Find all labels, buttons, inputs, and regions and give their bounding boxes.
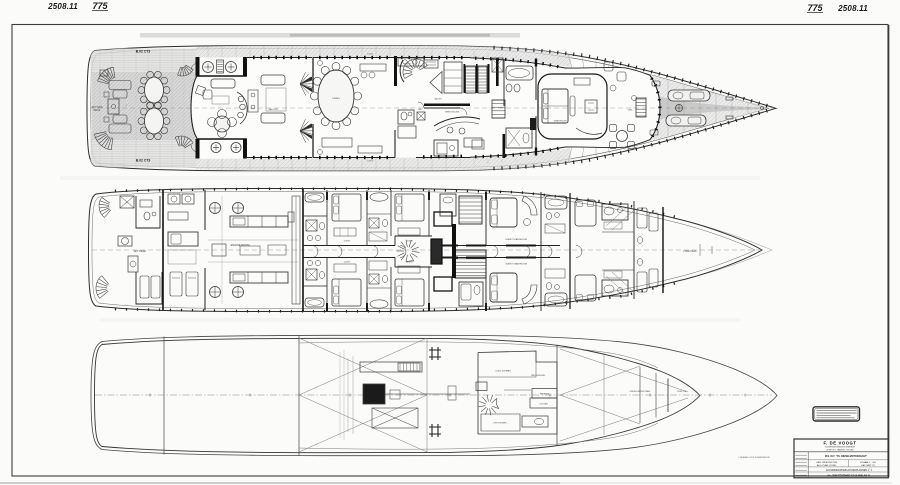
svg-text:AFT PEAK: AFT PEAK — [134, 249, 147, 253]
svg-text:PROVISIONS: PROVISIONS — [531, 375, 545, 377]
svg-text:o: o — [126, 105, 127, 107]
svg-text:SCHEEPSBOUWKUNDIG INGENIEUR: SCHEEPSBOUWKUNDIG INGENIEUR — [825, 447, 856, 449]
svg-text:FRESH WATER TANK: FRESH WATER TANK — [630, 390, 651, 393]
svg-text:STATEROOM: STATEROOM — [554, 120, 567, 123]
svg-text:2508.11: 2508.11 — [47, 2, 78, 11]
svg-text:GUEST STATEROOM: GUEST STATEROOM — [505, 263, 527, 266]
svg-text:© BUREAU VOOR SCHEEPSBOUW: © BUREAU VOOR SCHEEPSBOUW — [738, 456, 770, 459]
svg-text:COLD STORES: COLD STORES — [495, 371, 511, 373]
svg-text:GALLEY: GALLEY — [434, 98, 442, 101]
svg-text:GUEST: GUEST — [407, 262, 414, 264]
svg-text:PANTRY: PANTRY — [404, 63, 412, 66]
svg-text:ZIJDEK: ZIJDEK — [367, 161, 374, 163]
svg-text:F. DE VOOGT: F. DE VOOGT — [823, 440, 856, 445]
svg-text:ZIJDEK: ZIJDEK — [367, 54, 374, 56]
svg-text:FUEL OIL: FUEL OIL — [677, 391, 687, 393]
svg-text:DRY STORES: DRY STORES — [494, 423, 508, 425]
svg-text:ACCOMMODATIEPLAN DEKPLANNEN: ACCOMMODATIEPLAN DEKPLANNEN 2 : 1 — [826, 469, 873, 472]
svg-text:M.S. M.Y. 'T.S. DIESELMOTORJ: M.S. M.Y. 'T.S. DIESELMOTORJACHT' — [825, 455, 868, 458]
svg-text:OBS.: OBS. — [628, 110, 633, 112]
svg-text:GEN. INDELING TEK.: GEN. INDELING TEK. — [816, 462, 838, 464]
svg-text:No. 2508 TEKENING 52.00 M BL: No. 2508 TEKENING 52.00 M BLAD 11 — [828, 475, 871, 478]
svg-text:FREEZER: FREEZER — [540, 394, 550, 396]
svg-text:B.02 CT3: B.02 CT3 — [136, 159, 151, 163]
svg-text:COOLER: COOLER — [539, 404, 548, 406]
svg-text:2508.11: 2508.11 — [837, 4, 868, 13]
svg-text:SALOON: SALOON — [268, 108, 278, 111]
svg-text:DINING: DINING — [332, 98, 340, 100]
svg-text:GUEST: GUEST — [344, 241, 351, 243]
svg-text:775: 775 — [807, 3, 823, 13]
svg-text:HAL: HAL — [418, 108, 422, 111]
svg-text:FORE PEAK: FORE PEAK — [683, 250, 697, 253]
svg-text:GUEST STATEROOM: GUEST STATEROOM — [505, 238, 527, 241]
svg-text:DECK: DECK — [94, 109, 101, 112]
svg-text:775: 775 — [92, 1, 108, 11]
svg-text:WHEELHOUSE: WHEELHOUSE — [445, 112, 460, 114]
svg-text:B.02 CT3: B.02 CT3 — [136, 50, 151, 54]
svg-text:SCHAAL 1 : 100: SCHAAL 1 : 100 — [860, 461, 877, 464]
svg-text:GUEST: GUEST — [344, 262, 351, 264]
